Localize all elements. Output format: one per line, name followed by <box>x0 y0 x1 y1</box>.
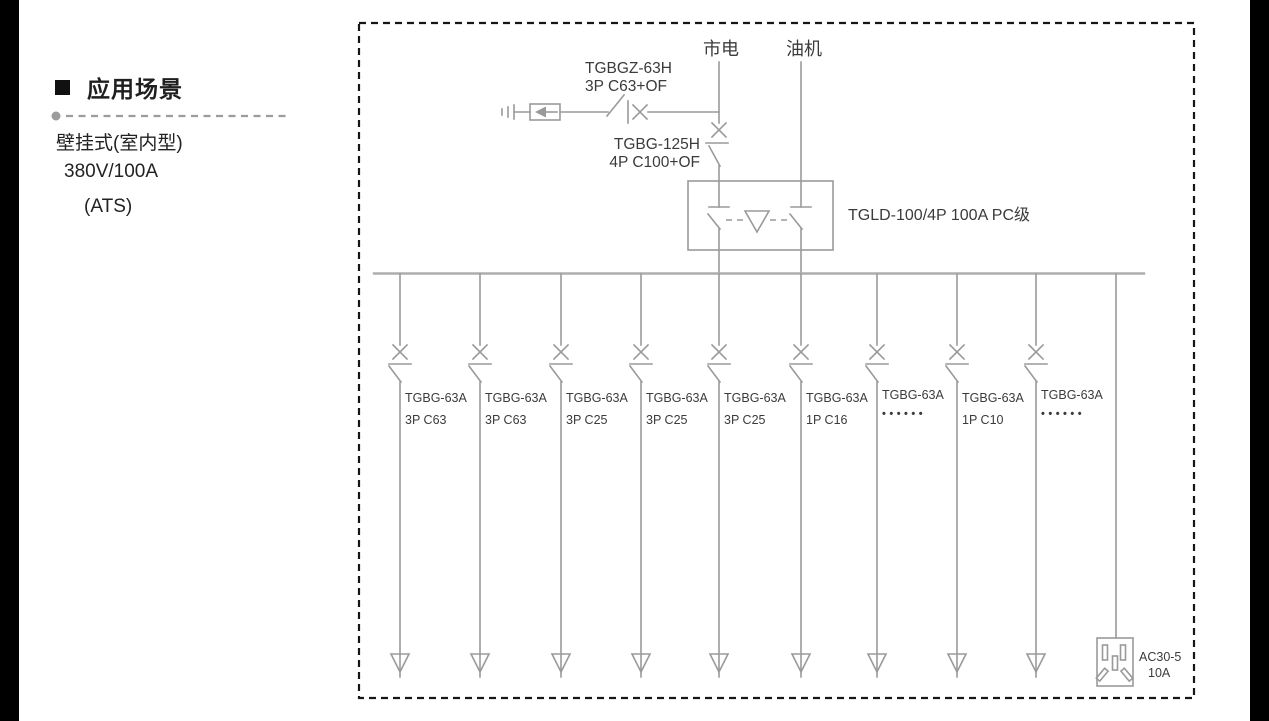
breaker-icon <box>708 364 730 382</box>
generator-label: 油机 <box>786 39 822 59</box>
spd-breaker-spec: 3P C63+OF <box>585 78 667 95</box>
breaker-icon <box>1025 364 1047 382</box>
branch-spec: 3P C63 <box>485 413 527 427</box>
drawout-contact-icon <box>950 345 964 359</box>
breaker-icon <box>469 364 491 382</box>
socket-rating: 10A <box>1148 666 1171 680</box>
branch-circuit: TGBG-63A 3P C63 <box>469 274 547 677</box>
drawout-contact-icon <box>554 345 568 359</box>
ats-switch <box>688 181 833 274</box>
ground-icon <box>502 105 514 119</box>
branch-spec: 1P C10 <box>962 413 1004 427</box>
branch-circuit: TGBG-63A 1P C16 <box>790 274 868 677</box>
incoming-breaker-model: TGBG-125H <box>614 136 700 153</box>
branch-model: TGBG-63A <box>485 391 547 405</box>
breaker-icon <box>550 364 572 382</box>
branch-model: TGBG-63A <box>962 391 1024 405</box>
branch-spec-ellipsis: •••••• <box>882 408 926 420</box>
ats-linkage-icon <box>726 211 792 232</box>
ats-label: TGLD-100/4P 100A PC级 <box>848 206 1030 224</box>
breaker-icon <box>607 95 647 123</box>
branch-model: TGBG-63A <box>882 388 944 402</box>
branch-model: TGBG-63A <box>806 391 868 405</box>
branch-spec: 3P C25 <box>724 413 766 427</box>
drawout-contact-icon <box>393 345 407 359</box>
branch-spec: 3P C63 <box>405 413 447 427</box>
incoming-breaker-spec: 4P C100+OF <box>609 154 700 171</box>
drawout-contact-icon <box>634 345 648 359</box>
socket-model: AC30-5 <box>1139 650 1181 664</box>
drawout-contact-icon <box>712 345 726 359</box>
drawout-contact-icon <box>473 345 487 359</box>
branch-spec: 3P C25 <box>566 413 608 427</box>
branch-spec-ellipsis: •••••• <box>1041 408 1085 420</box>
drawout-contact-icon <box>712 123 726 137</box>
branch-model: TGBG-63A <box>1041 388 1103 402</box>
drawout-contact-icon <box>1029 345 1043 359</box>
branch-model: TGBG-63A <box>724 391 786 405</box>
breaker-icon <box>866 364 888 382</box>
branch-model: TGBG-63A <box>646 391 708 405</box>
socket-icon <box>1096 638 1133 686</box>
branch-circuit: TGBG-63A 3P C25 <box>550 274 628 677</box>
breaker-icon <box>706 143 728 166</box>
branch-spec: 3P C25 <box>646 413 688 427</box>
branch-circuit: TGBG-63A 3P C25 <box>708 274 786 677</box>
branch-circuit: TGBG-63A •••••• <box>1025 274 1103 677</box>
ats-mains-contact-icon <box>708 207 729 229</box>
mains-label: 市电 <box>703 39 739 59</box>
drawout-contact-icon <box>870 345 884 359</box>
breaker-icon <box>790 364 812 382</box>
branch-model: TGBG-63A <box>405 391 467 405</box>
branch-circuit: TGBG-63A •••••• <box>866 274 944 677</box>
single-line-diagram: 市电 油机 <box>0 0 1269 721</box>
breaker-icon <box>389 364 411 382</box>
branch-circuit: TGBG-63A 3P C25 <box>630 274 708 677</box>
spd-icon <box>530 104 560 120</box>
spd-breaker-model: TGBGZ-63H <box>585 60 672 77</box>
mains-feeder <box>706 62 728 207</box>
diagram-dashed-border <box>359 23 1194 698</box>
breaker-icon <box>630 364 652 382</box>
socket-branch: AC30-5 10A <box>1096 274 1181 686</box>
ats-generator-contact-icon <box>790 207 811 229</box>
branch-circuit: TGBG-63A 1P C10 <box>946 274 1024 677</box>
branch-spec: 1P C16 <box>806 413 848 427</box>
breaker-icon <box>946 364 968 382</box>
branch-model: TGBG-63A <box>566 391 628 405</box>
drawout-contact-icon <box>794 345 808 359</box>
branch-circuit: TGBG-63A 3P C63 <box>389 274 467 677</box>
spd-branch: TGBGZ-63H 3P C63+OF <box>502 60 719 123</box>
